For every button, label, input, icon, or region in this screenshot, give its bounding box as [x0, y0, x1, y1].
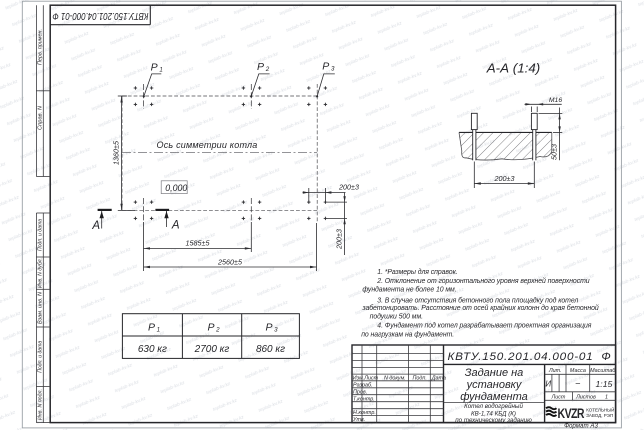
svg-text:установку: установку: [466, 379, 523, 391]
svg-text:Ось симметрии котла: Ось симметрии котла: [157, 140, 258, 150]
svg-text:Масштаб: Масштаб: [590, 368, 616, 374]
svg-text:Перв. примен.: Перв. примен.: [38, 29, 44, 65]
svg-text:Разраб.: Разраб.: [353, 382, 373, 388]
svg-text:200±3: 200±3: [338, 182, 359, 191]
svg-text:Р: Р: [151, 62, 158, 74]
svg-text:1585±5: 1585±5: [186, 239, 211, 248]
svg-text:Листов: Листов: [575, 395, 596, 401]
svg-text:Пров.: Пров.: [353, 389, 367, 395]
svg-text:2. Отклонение от горизонтально: 2. Отклонение от горизонтального уровня …: [376, 277, 589, 285]
svg-text:Р: Р: [266, 321, 273, 333]
svg-text:Справ. N: Справ. N: [38, 106, 44, 130]
svg-text:2: 2: [215, 327, 220, 334]
svg-text:860 кг: 860 кг: [256, 344, 285, 355]
svg-text:1: 1: [159, 67, 162, 74]
svg-text:KVZR: KVZR: [558, 406, 585, 421]
svg-text:2: 2: [265, 66, 270, 73]
svg-text:А-А (1:4): А-А (1:4): [486, 61, 541, 75]
svg-text:Инв. N дубл.: Инв. N дубл.: [38, 258, 44, 288]
svg-text:Подп. и дата: Подп. и дата: [38, 341, 44, 373]
svg-text:И: И: [545, 379, 551, 388]
svg-text:50±3: 50±3: [550, 144, 559, 160]
svg-text:Лист: Лист: [551, 395, 566, 401]
svg-text:Н.контр.: Н.контр.: [353, 410, 376, 416]
svg-text:КОТЕЛЬНЫЙ: КОТЕЛЬНЫЙ: [586, 405, 614, 412]
svg-text:1:15: 1:15: [596, 379, 613, 389]
svg-text:2560±5: 2560±5: [217, 257, 243, 266]
svg-text:–: –: [575, 378, 581, 387]
svg-text:Задание на: Задание на: [465, 367, 524, 379]
svg-text:КВТУ.150.201.04.000-01 Ф: КВТУ.150.201.04.000-01 Ф: [448, 351, 612, 363]
svg-text:Р: Р: [148, 321, 155, 333]
svg-text:1: 1: [605, 395, 608, 401]
svg-text:Масса: Масса: [570, 368, 586, 374]
svg-text:Инв. N подл.: Инв. N подл.: [38, 389, 44, 420]
svg-text:2700 кг: 2700 кг: [194, 344, 230, 355]
svg-text:М16: М16: [549, 97, 562, 104]
svg-text:Дата: Дата: [431, 375, 446, 381]
svg-text:Формат А3: Формат А3: [564, 423, 598, 430]
svg-text:N докум.: N докум.: [384, 375, 406, 381]
svg-text:по техническому заданию: по техническому заданию: [455, 417, 532, 424]
svg-text:Р: Р: [257, 61, 264, 73]
svg-text:1360±5: 1360±5: [112, 140, 121, 165]
svg-text:забетонировать. Расстояние от: забетонировать. Расстояние от осей крайн…: [361, 304, 598, 312]
svg-text:КВТУ.150.201.04.000-01 Ф: КВТУ.150.201.04.000-01 Ф: [52, 10, 148, 21]
svg-text:4. Фундамент под котел разраба: 4. Фундамент под котел разрабатывает про…: [377, 321, 592, 329]
svg-text:3: 3: [331, 66, 335, 73]
svg-text:Т.контр.: Т.контр.: [353, 396, 375, 402]
svg-text:Подп.: Подп.: [413, 375, 427, 381]
svg-text:А: А: [171, 220, 180, 232]
svg-text:3. В случае отсутствия бетонно: 3. В случае отсутствия бетонного пола пл…: [377, 297, 578, 305]
svg-text:1: 1: [157, 327, 160, 334]
svg-text:630 кг: 630 кг: [138, 344, 167, 355]
svg-text:А: А: [91, 220, 100, 232]
svg-text:200±3: 200±3: [334, 229, 343, 250]
svg-text:Котел водогрейный: Котел водогрейный: [464, 403, 523, 410]
svg-text:Утв.: Утв.: [352, 417, 365, 423]
svg-text:Р: Р: [322, 61, 329, 73]
svg-text:подушки 500 мм.: подушки 500 мм.: [370, 312, 424, 320]
svg-text:1. *Размеры для справок.: 1. *Размеры для справок.: [377, 268, 457, 276]
svg-text:200±3: 200±3: [494, 174, 515, 183]
svg-text:Лит.: Лит.: [548, 368, 562, 374]
svg-text:Изм.Лист: Изм.Лист: [353, 375, 379, 381]
svg-text:ЗАВОД, РЭП: ЗАВОД, РЭП: [586, 413, 613, 418]
svg-text:3: 3: [274, 327, 278, 334]
svg-text:Подп. и дата: Подп. и дата: [38, 219, 44, 251]
svg-text:Взам. инв. N: Взам. инв. N: [38, 292, 44, 324]
svg-text:Р: Р: [208, 321, 215, 333]
svg-text:фундамента: фундамента: [460, 391, 528, 403]
svg-text:фундамента не более 10 мм.: фундамента не более 10 мм.: [362, 285, 456, 293]
svg-text:по нагрузкам на фундамент.: по нагрузкам на фундамент.: [361, 330, 454, 338]
svg-text:0,000: 0,000: [165, 183, 187, 193]
